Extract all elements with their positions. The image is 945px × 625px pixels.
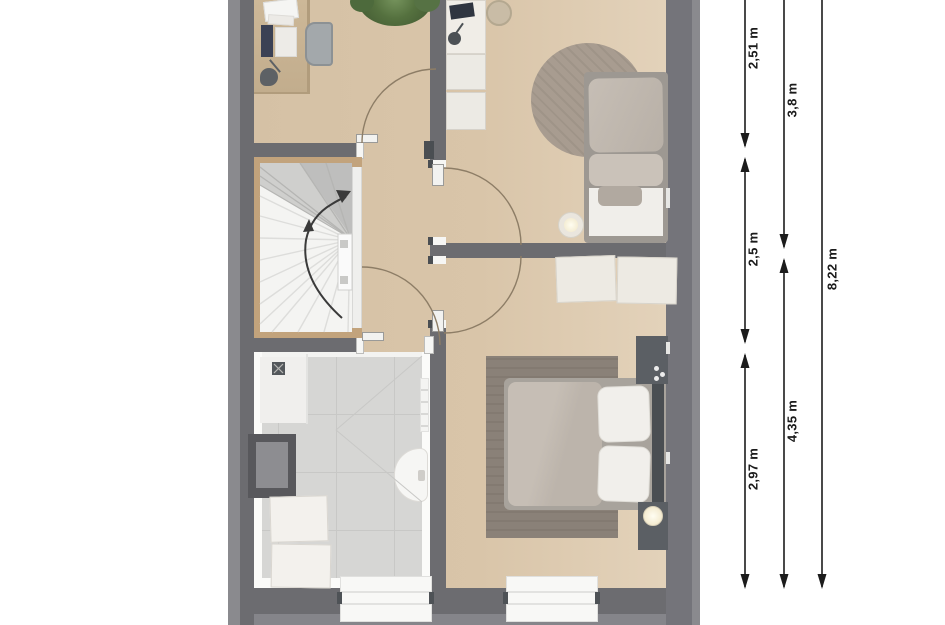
room-bedroom-top bbox=[446, 0, 666, 243]
washer-unit bbox=[269, 495, 328, 543]
toilet-flush-button bbox=[418, 470, 425, 481]
stair-railing-post bbox=[352, 157, 362, 167]
window-bathroom bbox=[340, 576, 432, 622]
wall-hall-bedrooms-lower bbox=[430, 328, 446, 588]
shower-drain-icon bbox=[272, 362, 285, 375]
stair-trim-top bbox=[254, 157, 352, 163]
dim-label-bottom-mid-segment: 4,35 m bbox=[785, 400, 800, 442]
laptop-screen bbox=[261, 25, 273, 57]
window-cap bbox=[337, 592, 342, 604]
washer-unit bbox=[271, 543, 332, 588]
door-leaf-bedroom-top bbox=[432, 164, 444, 186]
door-leaf-bedroom-master bbox=[432, 310, 444, 332]
wall-bottom bbox=[254, 588, 666, 614]
office-chair bbox=[305, 22, 333, 66]
bed-pillow bbox=[597, 445, 651, 503]
wardrobe-unit bbox=[617, 256, 678, 304]
stair-railing-right bbox=[352, 157, 362, 338]
single-bed-pillow bbox=[589, 154, 663, 186]
door-frame-cap bbox=[428, 237, 446, 245]
dim-label-top-mid-segment: 3,8 m bbox=[785, 83, 800, 118]
dimension-arrows bbox=[741, 133, 827, 589]
wall-fitting bbox=[666, 452, 670, 464]
stair-railing-post bbox=[352, 328, 362, 338]
desk-lamp-icon bbox=[260, 68, 278, 86]
door-frame-cap bbox=[424, 141, 434, 159]
exterior-band-bottom bbox=[254, 614, 666, 625]
wall-fitting bbox=[666, 342, 670, 354]
room-bedroom-master bbox=[446, 258, 666, 588]
single-bed-duvet bbox=[588, 77, 663, 152]
floorplan-screenshot: 2,51 m 2,5 m 2,97 m 3,8 m 4,35 m 8,22 m bbox=[0, 0, 945, 625]
window-cap bbox=[429, 592, 434, 604]
towel-radiator bbox=[420, 378, 429, 432]
wall-bathroom-north bbox=[254, 338, 362, 352]
desk-chair bbox=[486, 0, 512, 26]
room-office bbox=[254, 0, 430, 143]
chimney-niche-inner bbox=[256, 442, 288, 488]
dresser-unit bbox=[446, 92, 486, 130]
keyboard-tray bbox=[275, 27, 297, 57]
decor-dot bbox=[654, 376, 659, 381]
decor-dot bbox=[654, 366, 659, 371]
dim-label-middle-left-segment: 2,5 m bbox=[746, 232, 761, 267]
exterior-band-right bbox=[692, 0, 700, 625]
stair-trim-bottom bbox=[254, 332, 352, 338]
dim-label-bottom-left-segment: 2,97 m bbox=[746, 448, 761, 490]
dimension-lines bbox=[745, 0, 822, 587]
nightstand-lamp bbox=[643, 506, 663, 526]
window-cap bbox=[595, 592, 600, 604]
stairwell bbox=[254, 157, 362, 338]
wall-fitting bbox=[666, 188, 670, 208]
decor-dot bbox=[660, 372, 665, 377]
door-frame-cap bbox=[428, 256, 446, 264]
dim-label-top-left-segment: 2,51 m bbox=[746, 27, 761, 69]
window-cap bbox=[503, 592, 508, 604]
single-bed-cushion bbox=[598, 186, 642, 206]
headboard bbox=[652, 380, 664, 510]
wardrobe-unit bbox=[555, 255, 617, 303]
dresser-unit bbox=[446, 54, 486, 90]
wall-right bbox=[666, 0, 692, 625]
bedside-lamp-glow bbox=[564, 218, 578, 232]
double-bed-duvet bbox=[508, 382, 602, 506]
door-leaf-bathroom bbox=[362, 332, 384, 341]
wall-office-south bbox=[254, 143, 362, 157]
wall-left bbox=[240, 0, 254, 625]
dim-label-total: 8,22 m bbox=[825, 248, 840, 290]
exterior-band-left bbox=[228, 0, 240, 625]
stair-floor bbox=[260, 163, 352, 332]
door-frame-cap bbox=[424, 336, 434, 354]
bed-pillow bbox=[597, 385, 651, 443]
shower-screen bbox=[306, 354, 308, 424]
window-bedroom-master bbox=[506, 576, 598, 622]
stair-trim-left bbox=[254, 157, 260, 338]
